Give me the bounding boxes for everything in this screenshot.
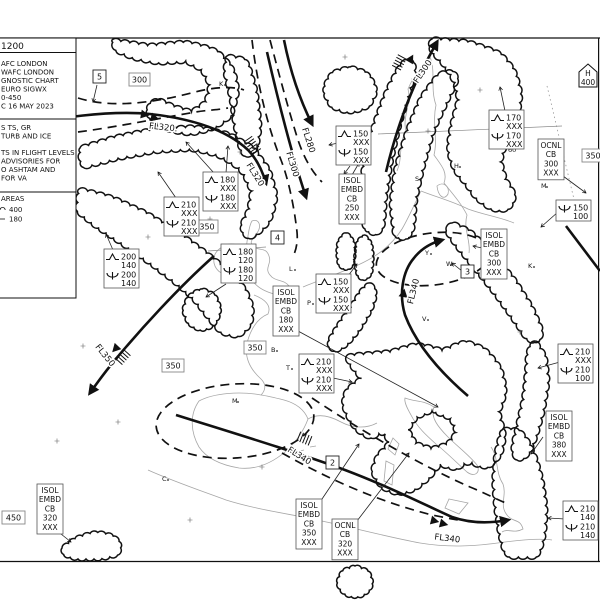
layer-base-value: XXX	[333, 304, 350, 313]
cb-info-line: ISOL	[300, 501, 318, 510]
city-label: V	[422, 315, 429, 323]
cb-info-box: ISOLEMBDCB180XXX	[273, 286, 299, 336]
cb-info-line: EMBD	[275, 297, 297, 306]
cb-info-line: OCNL	[541, 141, 563, 150]
cb-area-outline	[323, 66, 377, 114]
leader-line	[186, 142, 214, 173]
leader-line	[93, 85, 97, 102]
cb-info-line: CB	[546, 150, 556, 159]
turb-ice-box: 180120180120	[221, 244, 256, 283]
layer-base-value: XXX	[353, 156, 370, 165]
city-letter: B	[271, 346, 275, 354]
flight-level-value: 300	[132, 76, 147, 85]
legend-cb-base-value: 180	[9, 216, 22, 224]
jet-level-label: FL280	[299, 127, 317, 155]
legend-cb-top-value: 400	[9, 206, 22, 214]
city-dot	[427, 319, 429, 321]
leader-line	[226, 146, 228, 173]
city-label: B	[271, 346, 278, 354]
layer-base-value: 140	[580, 513, 595, 522]
city-label: W	[446, 260, 453, 268]
turb-ice-box: 180XXX180XXX	[203, 172, 238, 211]
tropopause-high-level: 400	[581, 78, 596, 87]
city-letter: Y	[424, 249, 429, 257]
graticule-cross	[188, 518, 193, 523]
layer-base-value: 140	[580, 531, 595, 540]
city-dot	[276, 350, 278, 352]
cb-info-line: ISOL	[485, 231, 503, 240]
cb-info-line: CB	[554, 431, 564, 440]
leader-line	[541, 212, 558, 227]
cb-info-line: EMBD	[483, 240, 505, 249]
flight-level-box: 5	[93, 70, 106, 83]
turb-ice-box: 200140200140	[104, 249, 139, 288]
layer-base-value: 140	[121, 279, 136, 288]
flight-level-box: 300	[129, 73, 150, 86]
flight-level-box: 4	[271, 231, 284, 244]
cb-info-line: XXX	[543, 169, 558, 178]
flight-level-value: 4	[275, 234, 280, 243]
city-dot	[294, 269, 296, 271]
layer-base-value: 120	[238, 256, 253, 265]
cb-info-line: EMBD	[341, 185, 363, 194]
cb-info-line: EMBD	[548, 422, 570, 431]
legend-cb-areas-label: AREAS	[1, 195, 25, 203]
city-dot	[237, 401, 239, 403]
city-letter: C	[162, 475, 167, 483]
flight-level-value: 2	[330, 459, 335, 468]
cb-info-line: ISOL	[343, 176, 361, 185]
leader-line	[452, 263, 462, 271]
graticule-cross	[81, 344, 86, 349]
cb-info-line: EMBD	[39, 495, 61, 504]
city-dot	[459, 166, 461, 168]
cb-info-line: 380	[552, 441, 567, 450]
leader-line	[500, 87, 505, 111]
cb-info-box: ISOLEMBDCB250XXX	[339, 174, 365, 224]
city-dot	[291, 368, 293, 370]
legend-heights-line: ADVISORIES FOR	[1, 158, 60, 166]
city-label: K	[528, 262, 535, 270]
flight-level-box: 350	[162, 359, 184, 372]
layer-base-value: XXX	[333, 286, 350, 295]
city-letter: T	[285, 364, 290, 372]
cb-info-line: XXX	[301, 538, 316, 547]
flight-level-box: 2	[326, 456, 339, 469]
layer-base-value: XXX	[181, 227, 198, 236]
cb-area-outline	[354, 235, 374, 280]
cb-area-outline	[408, 411, 456, 449]
city-label: T	[285, 364, 293, 372]
layer-base-value: XXX	[316, 384, 333, 393]
leader-line	[563, 176, 586, 193]
city-letter: K	[528, 262, 533, 270]
flight-level-value: 350	[585, 152, 600, 161]
flight-level-value: 5	[97, 73, 102, 82]
city-letter: S	[415, 175, 419, 183]
layer-base-value: XXX	[220, 184, 237, 193]
city-label: H	[454, 162, 461, 170]
city-letter: K	[219, 80, 224, 88]
city-letter: L	[289, 265, 293, 273]
cb-info-line: OCNL	[335, 521, 357, 530]
city-dot	[546, 186, 548, 188]
cb-info-box: OCNLCB320XXX	[332, 519, 358, 560]
city-label: P	[307, 299, 314, 307]
flight-level-value: 3	[465, 268, 470, 277]
city-label: M	[541, 182, 548, 190]
city-dot	[430, 253, 432, 255]
legend-panel: 1200 AFC LONDON WAFC LONDON GNOSTIC CHAR…	[0, 38, 76, 298]
cb-info-line: 300	[487, 259, 502, 268]
layer-base-value: 100	[575, 374, 590, 383]
cb-info-box: OCNLCB300XXX	[538, 139, 564, 180]
layer-base-value: 140	[121, 261, 136, 270]
cb-info-line: 320	[338, 539, 353, 548]
jet-level-label: FL340	[434, 532, 461, 545]
cb-info-line: CB	[489, 249, 499, 258]
graticule-cross	[146, 235, 151, 240]
legend-title: 1200	[1, 42, 24, 52]
flight-level-box: 350	[244, 341, 266, 354]
cb-info-box: ISOLEMBDCB380XXX	[546, 411, 572, 461]
cb-area-outline	[182, 288, 221, 331]
flight-level-value: 450	[6, 514, 21, 523]
layer-base-value: XXX	[353, 138, 370, 147]
layer-base-value: XXX	[181, 209, 198, 218]
graticule-cross	[260, 465, 265, 470]
legend-header-line: WAFC LONDON	[1, 69, 54, 77]
turb-ice-box: 210XXX210XXX	[164, 197, 199, 236]
city-dot	[167, 479, 169, 481]
legend-header-line: C 16 MAY 2023	[1, 103, 54, 111]
graticule-cross	[55, 439, 60, 444]
city-dot	[224, 84, 226, 86]
city-letter: H	[454, 162, 459, 170]
cb-info-line: CB	[304, 519, 314, 528]
city-dot	[533, 266, 535, 268]
flight-level-value: 350	[247, 344, 262, 353]
city-letter: M	[232, 397, 238, 405]
cb-info-line: ISOL	[41, 486, 59, 495]
layer-base-value: XXX	[316, 366, 333, 375]
leader-line	[357, 453, 409, 521]
cb-area-outline	[342, 341, 507, 495]
cb-area-outline	[61, 531, 122, 561]
legend-heights-line: FOR VA	[1, 175, 27, 183]
cb-info-line: XXX	[486, 268, 501, 277]
jet-level-label: FL340	[406, 278, 422, 306]
layer-base-value: 120	[238, 274, 253, 283]
cb-info-line: CB	[281, 306, 291, 315]
tropopause-high-letter: H	[585, 69, 591, 78]
cb-info-box: ISOLEMBDCB350XXX	[296, 499, 322, 549]
euro-sigwx-chart: 60	[0, 0, 600, 600]
cb-area-outline	[336, 233, 356, 270]
legend-heights-line: O ASHTAM AND	[1, 166, 55, 174]
leader-line	[158, 172, 176, 198]
city-letter: W	[446, 260, 453, 268]
cb-info-line: 250	[345, 204, 360, 213]
cb-info-line: 180	[279, 316, 294, 325]
city-dot	[420, 179, 422, 181]
cb-info-line: 350	[302, 529, 317, 538]
flight-level-value: 350	[165, 362, 180, 371]
city-label: M	[232, 397, 239, 405]
graticule-cross	[116, 420, 121, 425]
city-dot	[451, 264, 453, 266]
city-letter: P	[307, 299, 311, 307]
turb-ice-box: 210140210140	[563, 501, 598, 540]
layer-base-value: 100	[573, 212, 588, 221]
cb-info-line: CB	[347, 194, 357, 203]
cb-info-line: CB	[340, 530, 350, 539]
legend-header-line: 0-450	[1, 94, 21, 102]
city-label: L	[289, 265, 296, 273]
cb-info-line: EMBD	[298, 510, 320, 519]
jet-level-label: FL350	[93, 343, 117, 369]
layer-base-value: XXX	[506, 122, 523, 131]
city-label: Y	[424, 249, 432, 257]
cb-info-line: 320	[43, 514, 58, 523]
legend-cb-note-line: S TS, GR	[1, 124, 31, 132]
legend-header-line: GNOSTIC CHART	[1, 77, 59, 85]
leader-line	[106, 234, 113, 250]
cb-info-box: ISOLEMBDCB320XXX	[37, 484, 63, 534]
turb-ice-box: 210XXX210100	[558, 344, 593, 383]
city-letter: V	[422, 315, 427, 323]
turb-ice-box: 150XXX150XXX	[336, 126, 371, 165]
cb-info-line: XXX	[344, 213, 359, 222]
graticule-cross	[478, 88, 483, 93]
cb-info-line: XXX	[337, 549, 352, 558]
graticule-cross	[343, 55, 348, 60]
leader-line	[344, 166, 350, 174]
leader-line	[333, 378, 352, 382]
cb-info-line: CB	[45, 504, 55, 513]
cb-info-line: 300	[544, 159, 559, 168]
city-letter: M	[541, 182, 547, 190]
layer-base-value: XXX	[506, 140, 523, 149]
city-dot	[312, 303, 314, 305]
flight-level-value: 350	[199, 223, 214, 232]
cb-info-line: XXX	[278, 325, 293, 334]
flight-level-box: 3	[461, 265, 474, 278]
turb-ice-box: 150XXX150XXX	[316, 274, 351, 313]
legend-header-line: EURO SIGWX	[1, 86, 47, 94]
cb-area-outline	[337, 565, 374, 598]
turb-ice-box: 150100	[556, 200, 591, 221]
turb-ice-box: 170XXX170XXX	[489, 110, 524, 149]
legend-cb-note-line: TURB AND ICE	[0, 133, 51, 141]
graticule-cross	[426, 129, 431, 134]
cb-info-line: ISOL	[550, 413, 568, 422]
cb-info-box: ISOLEMBDCB300XXX	[481, 229, 507, 279]
cb-info-line: XXX	[551, 450, 566, 459]
legend-header-line: AFC LONDON	[1, 60, 47, 68]
cb-info-line: XXX	[42, 523, 57, 532]
leader-line	[548, 518, 565, 519]
layer-base-value: XXX	[575, 356, 592, 365]
city-label: K	[219, 80, 226, 88]
tropopause-high-symbol: H400	[579, 64, 597, 87]
layer-base-value: XXX	[220, 202, 237, 211]
cb-info-line: ISOL	[277, 288, 295, 297]
city-label: C	[162, 475, 169, 483]
flight-level-box: 450	[2, 511, 25, 524]
jet-level-label: FL320.	[148, 122, 177, 135]
turb-ice-box: 210XXX210XXX	[299, 354, 334, 393]
labels-and-boxes: 5300350350350350432450180XXX180XXX210XXX…	[2, 58, 600, 559]
flight-level-box: 350	[582, 149, 600, 162]
legend-heights-line: TS IN FLIGHT LEVELS	[0, 149, 75, 157]
